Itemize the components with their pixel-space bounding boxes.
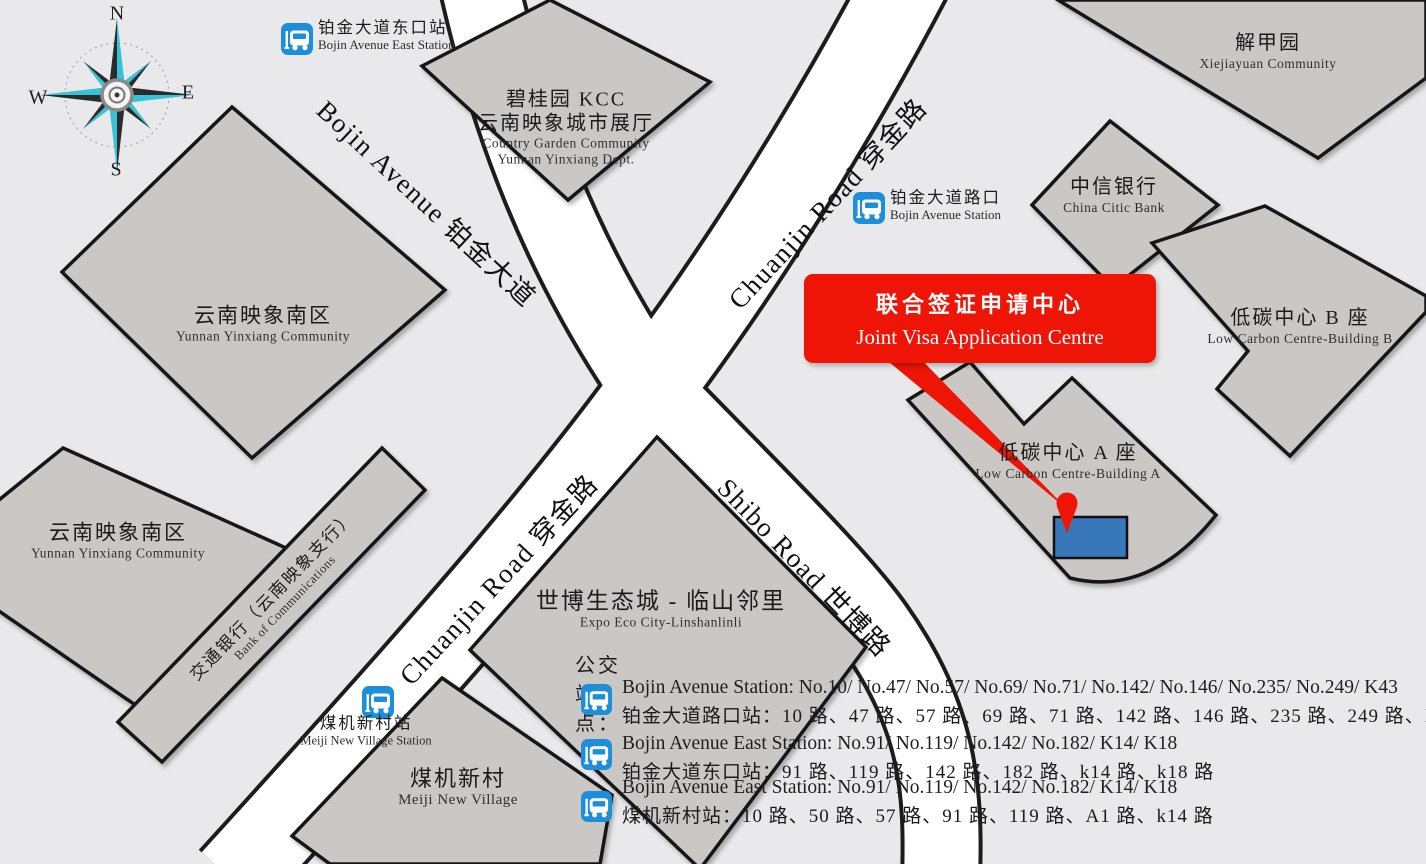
bus-route-row: Bojin Avenue East Station: No.91/ No.119… (622, 777, 1426, 828)
station-label-meiji: 煤机新村站 Meiji New Village Station (300, 714, 431, 747)
building-label-expo: 世博生态城 - 临山邻里 Expo Eco City-Linshanlinli (536, 587, 786, 630)
destination-banner: 联合签证申请中心 Joint Visa Application Centre (804, 274, 1156, 363)
station-label-bojin-east: 铂金大道东口站 Bojin Avenue East Station (318, 19, 455, 53)
bus-station-icon (581, 739, 612, 770)
building-label-country-garden: 碧桂园 KCC 云南映象城市展厅 Country Garden Communit… (478, 88, 654, 167)
bus-station-icon (581, 684, 612, 715)
bus-route-row: Bojin Avenue Station: No.10/ No.47/ No.5… (622, 677, 1426, 728)
destination-title-en: Joint Visa Application Centre (856, 325, 1103, 350)
building-label-citic: 中信银行 China Citic Bank (1063, 176, 1165, 216)
compass-west-label: W (29, 87, 48, 110)
bus-station-icon (581, 791, 612, 822)
compass-rose-icon (40, 18, 194, 172)
compass-north-label: N (110, 3, 124, 26)
building-label-meiji: 煤机新村 Meiji New Village (398, 766, 518, 810)
compass-south-label: S (110, 159, 121, 182)
map-canvas: N S W E Bojin Avenue 铂金大道 Chuanjin Road … (0, 0, 1426, 864)
building-label-low-carbon-b: 低碳中心 B 座 Low Carbon Centre-Building B (1207, 307, 1392, 347)
bus-station-icon (853, 192, 885, 224)
station-label-bojin: 铂金大道路口 Bojin Avenue Station (890, 189, 1001, 223)
building-label-low-carbon-a: 低碳中心 A 座 Low Carbon Centre-Building A (975, 442, 1160, 482)
bus-station-icon (281, 23, 313, 55)
compass-east-label: E (182, 82, 194, 105)
destination-title-zh: 联合签证申请中心 (876, 287, 1084, 319)
building-label-yunnan-south: 云南映象南区 Yunnan Yinxiang Community (31, 521, 205, 562)
building-label-xiejiayuan: 解甲园 Xiejiayuan Community (1199, 32, 1336, 72)
building-label-yunnan-north: 云南映象南区 Yunnan Yinxiang Community (176, 304, 350, 345)
